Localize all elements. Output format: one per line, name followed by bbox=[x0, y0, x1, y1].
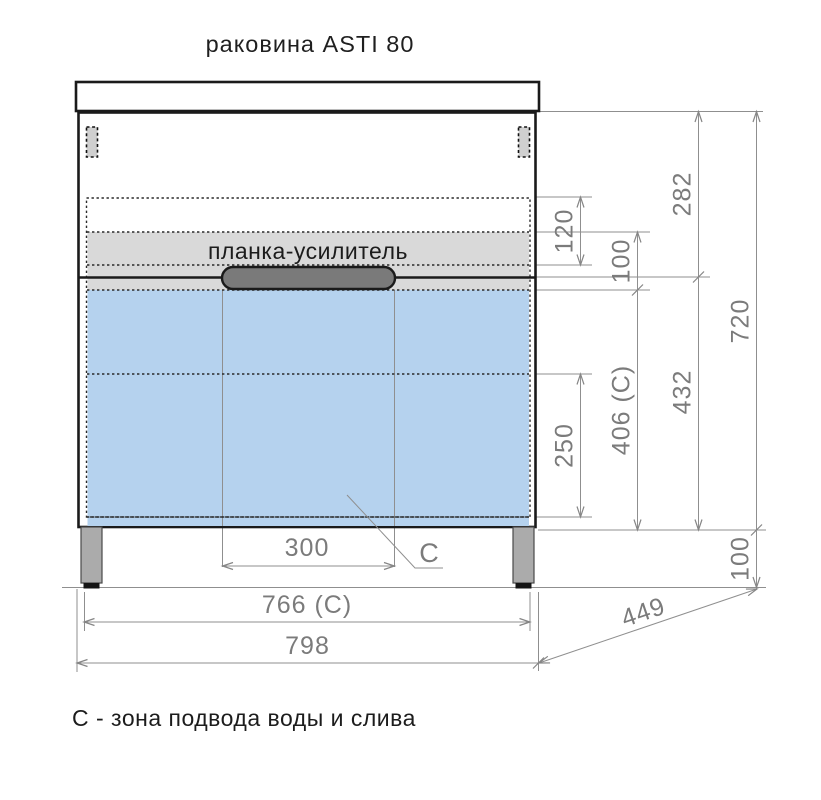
dim-100-strip-label: 100 bbox=[608, 239, 636, 284]
dim-798-label: 798 bbox=[285, 632, 330, 660]
dim-100-leg: 100 bbox=[727, 530, 761, 588]
leg-left bbox=[81, 527, 102, 583]
leg-right bbox=[513, 527, 534, 583]
dim-120-label: 120 bbox=[551, 209, 579, 254]
dim-798: 798 bbox=[77, 632, 544, 669]
dim-406-label: 406 (С) bbox=[608, 365, 636, 455]
dim-432: 432 bbox=[669, 277, 703, 530]
page-title: раковина ASTI 80 bbox=[206, 31, 415, 57]
sink-countertop bbox=[76, 82, 539, 111]
dim-449: 449 bbox=[538, 586, 758, 667]
zone-c-area bbox=[87, 290, 529, 526]
hinge-mark-right bbox=[519, 127, 530, 157]
dim-300: 300 bbox=[223, 534, 395, 570]
reinforcement-strip-label: планка-усилитель bbox=[208, 238, 408, 264]
dim-720-label: 720 bbox=[727, 299, 755, 344]
dim-449-label: 449 bbox=[618, 592, 669, 633]
dim-250-label: 250 bbox=[551, 423, 579, 468]
zone-c-letter: С bbox=[419, 538, 439, 568]
dim-300-label: 300 bbox=[285, 534, 330, 562]
zone-c-footnote: С - зона подвода воды и слива bbox=[72, 705, 416, 731]
dim-100-strip: 100 bbox=[608, 232, 644, 296]
hinge-mark-left bbox=[87, 127, 98, 157]
dim-406: 406 (С) bbox=[608, 290, 642, 530]
dim-766-label: 766 (С) bbox=[262, 591, 352, 619]
dim-720: 720 bbox=[727, 112, 763, 536]
dim-100-leg-label: 100 bbox=[727, 536, 755, 581]
dim-766: 766 (С) bbox=[84, 591, 530, 626]
technical-drawing-page: раковина ASTI 80 bbox=[0, 0, 821, 800]
drawer-handle bbox=[222, 267, 395, 289]
leg-foot-right bbox=[516, 583, 532, 589]
dim-282: 282 bbox=[669, 112, 705, 283]
dim-282-label: 282 bbox=[669, 172, 697, 217]
dim-120: 120 bbox=[551, 197, 585, 265]
dim-250: 250 bbox=[551, 374, 585, 517]
leg-foot-left bbox=[84, 583, 100, 589]
vanity-technical-drawing: раковина ASTI 80 bbox=[0, 0, 821, 800]
zone-c-fill bbox=[88, 290, 530, 526]
dim-432-label: 432 bbox=[669, 370, 697, 415]
